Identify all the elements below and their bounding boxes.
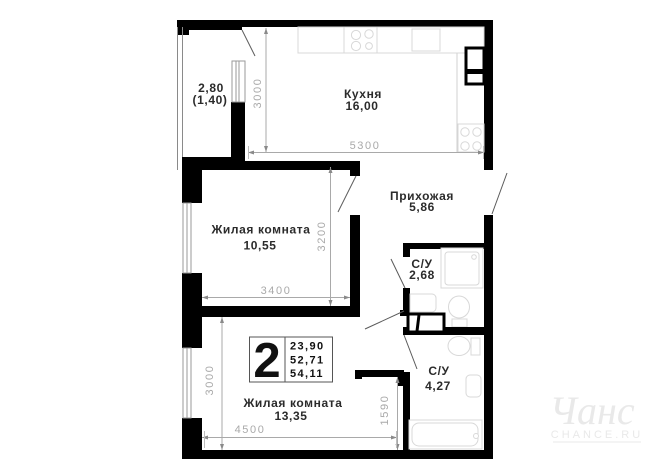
svg-text:52,71: 52,71 — [290, 355, 325, 367]
svg-text:3400: 3400 — [261, 285, 292, 297]
svg-text:3000: 3000 — [204, 365, 216, 396]
svg-text:(1,40): (1,40) — [193, 93, 228, 107]
svg-text:2,68: 2,68 — [409, 268, 435, 282]
svg-text:3200: 3200 — [316, 221, 328, 252]
svg-text:1590: 1590 — [379, 395, 391, 426]
svg-text:Жилая комната: Жилая комната — [210, 223, 310, 237]
svg-text:С/У: С/У — [428, 364, 449, 378]
svg-text:10,55: 10,55 — [243, 239, 276, 253]
svg-text:5300: 5300 — [350, 140, 381, 152]
svg-text:CHANCE.RU: CHANCE.RU — [551, 429, 643, 441]
svg-text:2: 2 — [253, 334, 280, 388]
svg-text:4500: 4500 — [235, 424, 266, 436]
svg-text:54,11: 54,11 — [290, 368, 324, 380]
svg-text:3000: 3000 — [252, 78, 264, 109]
svg-text:13,35: 13,35 — [274, 409, 307, 423]
svg-text:16,00: 16,00 — [345, 99, 378, 113]
svg-text:4,27: 4,27 — [425, 379, 451, 393]
svg-text:23,90: 23,90 — [290, 341, 325, 353]
svg-text:Жилая комната: Жилая комната — [242, 396, 342, 410]
svg-text:5,86: 5,86 — [409, 200, 435, 214]
svg-text:Чанс: Чанс — [549, 388, 634, 433]
